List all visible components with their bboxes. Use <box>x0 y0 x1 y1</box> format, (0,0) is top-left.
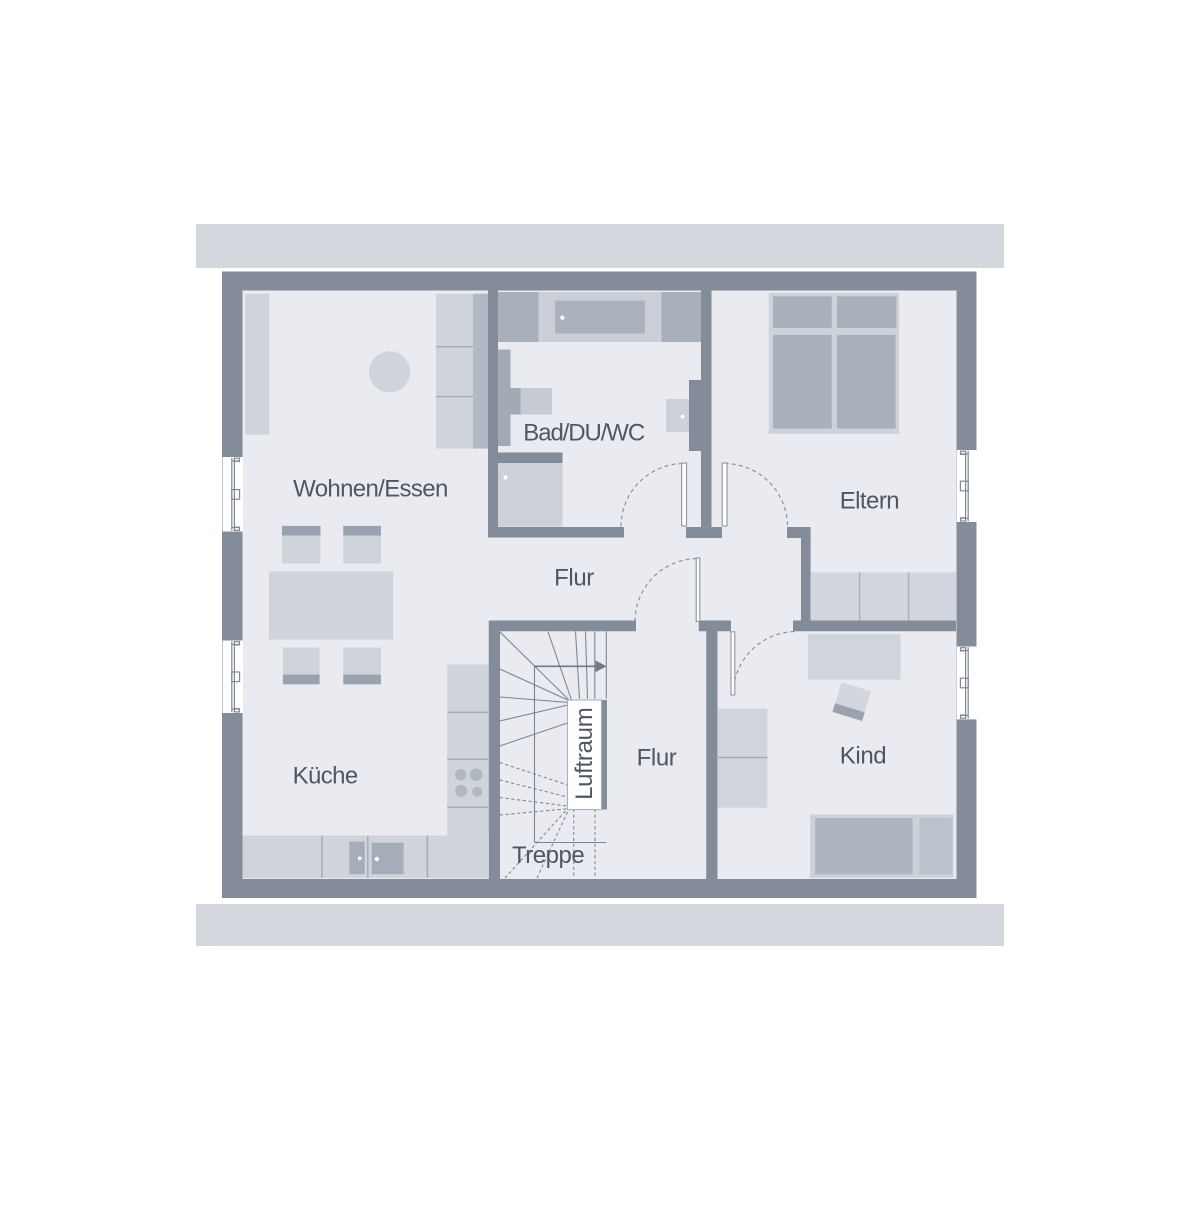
svg-text:Bad/DU/WC: Bad/DU/WC <box>523 419 645 446</box>
svg-text:Flur: Flur <box>554 564 594 591</box>
svg-text:Luftraum: Luftraum <box>571 708 598 800</box>
svg-text:Wohnen/Essen: Wohnen/Essen <box>293 475 448 502</box>
svg-text:Küche: Küche <box>293 763 358 790</box>
svg-text:Treppe: Treppe <box>512 842 584 869</box>
svg-text:Eltern: Eltern <box>840 488 899 515</box>
svg-text:Flur: Flur <box>637 744 677 771</box>
svg-text:Kind: Kind <box>840 743 886 770</box>
